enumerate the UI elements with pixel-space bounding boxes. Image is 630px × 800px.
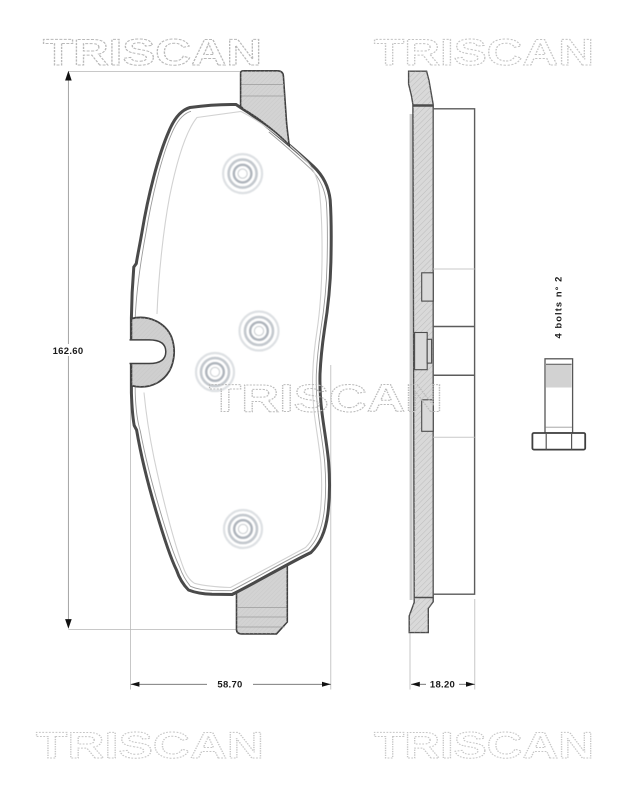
svg-text:58.70: 58.70 <box>217 680 242 691</box>
svg-text:162.60: 162.60 <box>53 346 84 357</box>
svg-text:TRISCAN: TRISCAN <box>374 32 594 73</box>
svg-text:18.20: 18.20 <box>430 680 455 691</box>
svg-text:TRISCAN: TRISCAN <box>374 725 594 766</box>
svg-text:TRISCAN: TRISCAN <box>43 32 262 73</box>
svg-text:TRISCAN: TRISCAN <box>209 378 443 421</box>
svg-text:4 bolts n° 2: 4 bolts n° 2 <box>554 276 564 339</box>
svg-text:TRISCAN: TRISCAN <box>36 725 264 766</box>
